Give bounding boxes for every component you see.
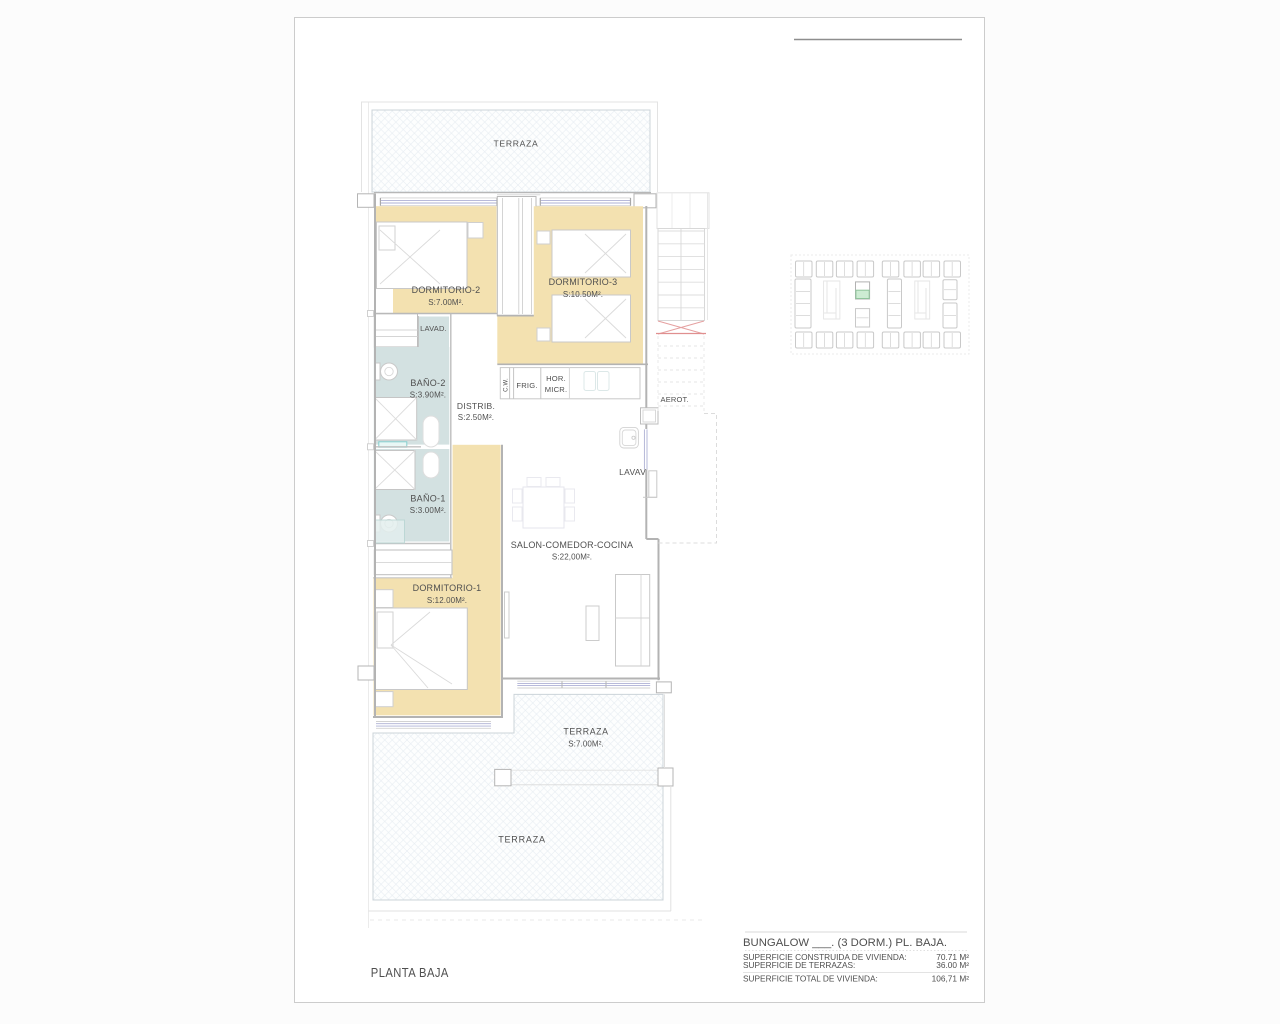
svg-text:BUNGALOW ___. (3 DORM.) PL. B: BUNGALOW ___. (3 DORM.) PL. BAJA. bbox=[743, 937, 947, 949]
svg-text:BAÑO-2: BAÑO-2 bbox=[410, 378, 445, 388]
svg-text:S:22,00M².: S:22,00M². bbox=[552, 553, 592, 562]
svg-text:FRIG.: FRIG. bbox=[516, 381, 537, 390]
svg-text:S:7.00M².: S:7.00M². bbox=[568, 740, 604, 749]
svg-text:PLANTA BAJA: PLANTA BAJA bbox=[371, 965, 449, 980]
svg-text:S:3.90M².: S:3.90M². bbox=[410, 391, 446, 400]
svg-text:S:10.50M².: S:10.50M². bbox=[563, 290, 603, 299]
svg-text:S:7.00M².: S:7.00M². bbox=[428, 298, 464, 307]
svg-text:C.W.: C.W. bbox=[504, 378, 510, 392]
svg-text:HOR.: HOR. bbox=[546, 374, 566, 383]
svg-text:106,71 M²: 106,71 M² bbox=[932, 974, 970, 984]
svg-text:36.00 M²: 36.00 M² bbox=[936, 960, 969, 970]
svg-text:S:12.00M².: S:12.00M². bbox=[427, 596, 467, 605]
svg-text:TERRAZA: TERRAZA bbox=[498, 835, 546, 845]
svg-text:TERRAZA: TERRAZA bbox=[563, 727, 608, 737]
svg-text:DISTRIB.: DISTRIB. bbox=[457, 401, 495, 411]
svg-text:SUPERFICIE TOTAL DE VIVIENDA:: SUPERFICIE TOTAL DE VIVIENDA: bbox=[743, 974, 878, 984]
svg-text:MICR.: MICR. bbox=[545, 385, 568, 394]
svg-text:DORMITORIO-2: DORMITORIO-2 bbox=[412, 285, 481, 295]
svg-text:DORMITORIO-3: DORMITORIO-3 bbox=[549, 277, 618, 287]
svg-text:LAVAV.: LAVAV. bbox=[619, 467, 648, 477]
svg-text:AEROT.: AEROT. bbox=[661, 395, 689, 404]
svg-text:LAVAD.: LAVAD. bbox=[420, 324, 447, 333]
svg-text:TERRAZA: TERRAZA bbox=[493, 139, 538, 149]
svg-text:DORMITORIO-1: DORMITORIO-1 bbox=[413, 583, 482, 593]
svg-text:S:2.50M².: S:2.50M². bbox=[458, 413, 494, 422]
svg-text:SUPERFICIE DE TERRAZAS:: SUPERFICIE DE TERRAZAS: bbox=[743, 960, 855, 970]
svg-text:S:3.00M².: S:3.00M². bbox=[410, 506, 446, 515]
svg-text:BAÑO-1: BAÑO-1 bbox=[410, 494, 445, 504]
svg-text:SALON-COMEDOR-COCINA: SALON-COMEDOR-COCINA bbox=[511, 540, 634, 550]
